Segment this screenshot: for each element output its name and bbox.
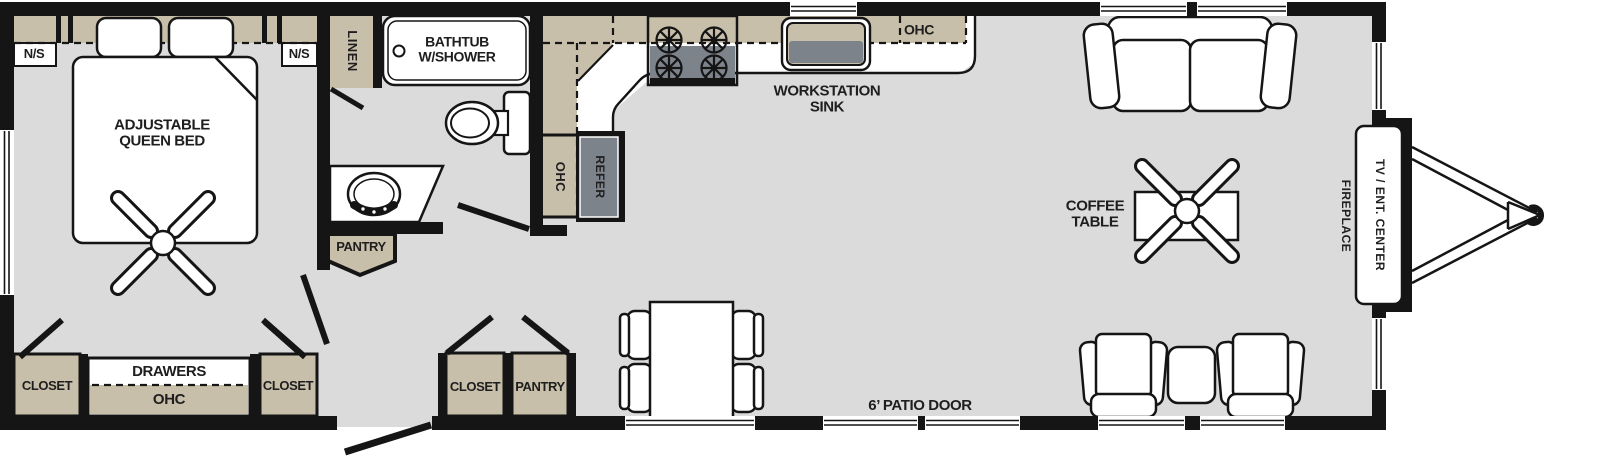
floorplan: N/S N/S ADJUSTABLE QUEEN BED LINEN BATHT… xyxy=(0,0,1600,456)
floorplan-drawing xyxy=(0,0,1600,456)
linen-label: LINEN xyxy=(345,30,359,72)
workstation-sink-label: WORKSTATION SINK xyxy=(774,83,881,114)
window-sofa-2 xyxy=(1197,2,1287,16)
closet-right-label: CLOSET xyxy=(263,379,313,393)
window-recliner-1 xyxy=(1098,416,1185,430)
sofa xyxy=(1083,17,1298,111)
tv-center-label: TV / ENT. CENTER xyxy=(1374,159,1386,271)
hall-pantry-label: PANTRY xyxy=(515,380,565,394)
dining-table xyxy=(650,302,733,422)
kitchen-ohc-side-label: OHC xyxy=(553,162,567,192)
bed-label: ADJUSTABLE QUEEN BED xyxy=(114,117,210,148)
window-rear-top xyxy=(1372,42,1386,110)
end-table xyxy=(1168,347,1215,403)
drawers-label: DRAWERS xyxy=(132,364,206,380)
patio-door-label: 6’ PATIO DOOR xyxy=(868,398,971,414)
pillow xyxy=(169,18,233,57)
nightstand-right-label: N/S xyxy=(289,47,309,61)
kitchen-ohc-top-label: OHC xyxy=(904,23,934,38)
bathtub-label: BATHTUB W/SHOWER xyxy=(419,34,496,63)
window-dining xyxy=(625,416,755,430)
refer-label: REFER xyxy=(594,155,606,198)
pantry-upper-label: PANTRY xyxy=(336,240,386,254)
window-sofa-1 xyxy=(1100,2,1187,16)
pillow xyxy=(97,18,161,57)
nightstand-left-label: N/S xyxy=(24,47,44,61)
recliner-right xyxy=(1216,334,1304,417)
hall-closet-label: CLOSET xyxy=(450,380,500,394)
entry-door xyxy=(345,425,431,452)
window-kitchen xyxy=(790,2,857,16)
window-bedroom-left xyxy=(0,130,14,295)
fireplace-label: FIREPLACE xyxy=(1340,180,1352,253)
workstation-sink xyxy=(782,18,870,70)
closet-left-label: CLOSET xyxy=(22,379,72,393)
window-recliner-2 xyxy=(1200,416,1285,430)
window-rear-bottom xyxy=(1372,318,1386,390)
patio-door-divider xyxy=(918,416,925,430)
recliner-left xyxy=(1079,334,1167,417)
bedroom-ohc-label: OHC xyxy=(153,392,185,408)
trailer-hitch xyxy=(1412,147,1541,283)
coffee-table-label: COFFEE TABLE xyxy=(1066,198,1124,229)
hitch-coupler xyxy=(1529,207,1541,223)
